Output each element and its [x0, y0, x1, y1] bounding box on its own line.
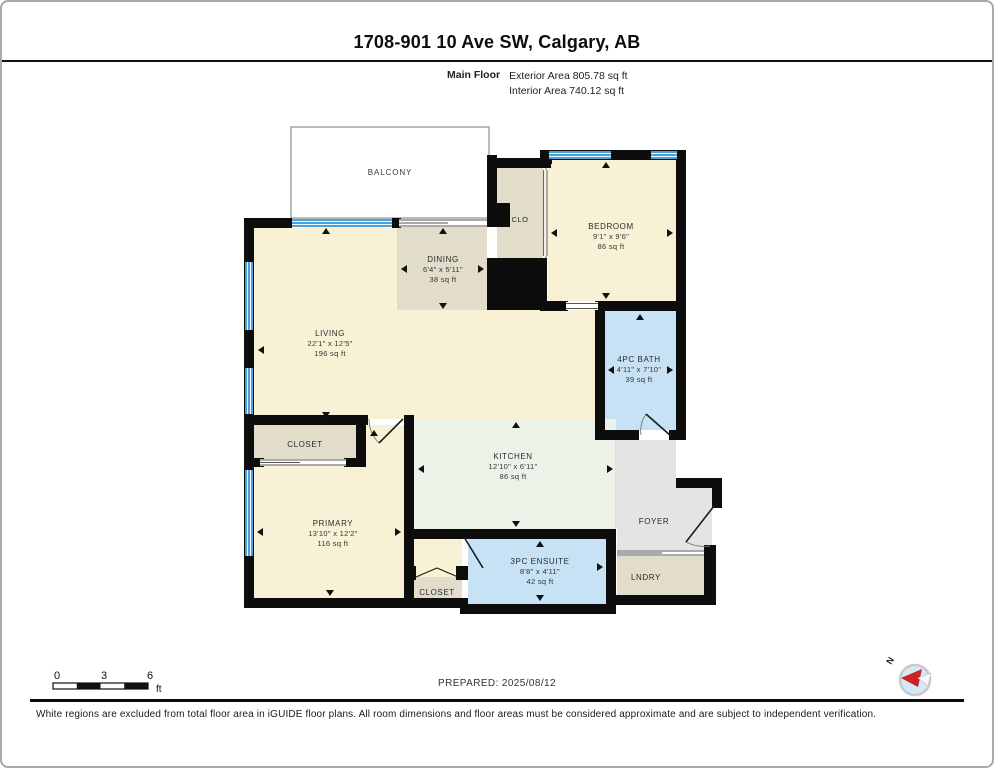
bath-area: 39 sq ft [626, 375, 654, 384]
bath-label: 4PC BATH [617, 355, 660, 364]
kitchen-label: KITCHEN [493, 452, 532, 461]
living-dims: 22'1" x 12'5" [307, 339, 352, 348]
bath-dims: 4'11" x 7'10" [617, 365, 662, 374]
ensuite-label: 3PC ENSUITE [510, 557, 569, 566]
disclaimer-text: White regions are excluded from total fl… [36, 709, 964, 720]
clo-label: CLO [512, 215, 529, 224]
kitchen-dims: 12'10" x 6'11" [489, 462, 538, 471]
primary-area: 116 sq ft [318, 539, 350, 548]
living-label: LIVING [315, 329, 345, 338]
bedroom-area: 86 sq ft [598, 242, 626, 251]
footer-divider [30, 699, 964, 702]
ensuite-dims: 8'8" x 4'11" [520, 567, 560, 576]
bedroom-dims: 9'1" x 9'6" [593, 232, 629, 241]
bedroom-label: BEDROOM [588, 222, 634, 231]
closet-lower-label: CLOSET [419, 588, 455, 597]
lndry-label: LNDRY [631, 573, 661, 582]
compass-north-label: N [884, 655, 896, 666]
foyer-label: FOYER [639, 517, 670, 526]
dining-label: DINING [427, 255, 459, 264]
ensuite-area: 42 sq ft [527, 577, 555, 586]
foyer-region [617, 440, 712, 553]
living-area: 196 sq ft [314, 349, 346, 358]
primary-dims: 13'10" x 12'2" [308, 529, 358, 538]
compass: N [884, 655, 931, 695]
closet-upper-label: CLOSET [287, 440, 323, 449]
dining-area: 38 sq ft [430, 275, 458, 284]
primary-label: PRIMARY [313, 519, 354, 528]
floor-plan: BALCONY DINING 6'4" x 5'11" 38 sq ft CLO… [0, 0, 994, 768]
balcony-label: BALCONY [368, 168, 413, 177]
prepared-date: PREPARED: 2025/08/12 [0, 678, 994, 689]
dining-dims: 6'4" x 5'11" [423, 265, 463, 274]
kitchen-area: 86 sq ft [500, 472, 528, 481]
